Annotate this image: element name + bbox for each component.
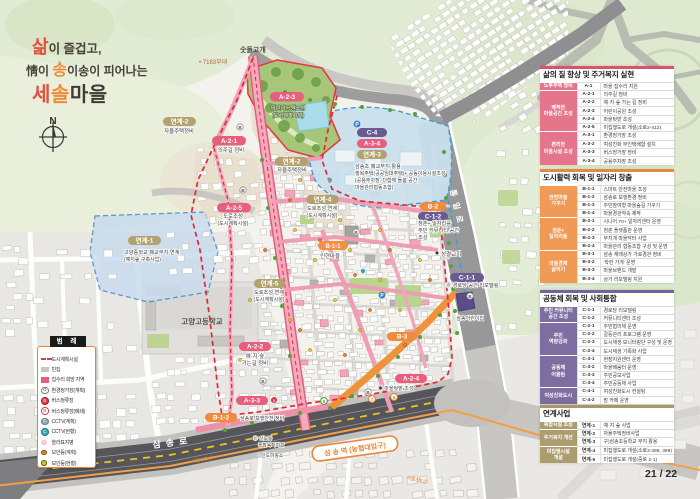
svg-text:B-3: B-3 xyxy=(397,333,408,340)
svg-text:연계-2: 연계-2 xyxy=(283,156,301,165)
svg-text:자율주택정비: 자율주택정비 xyxy=(277,166,307,174)
svg-text:B-2: B-2 xyxy=(428,203,439,210)
svg-text:B-1-1: B-1-1 xyxy=(325,244,341,250)
svg-text:자율주택정비: 자율주택정비 xyxy=(164,127,194,135)
svg-text:C-1-2: C-1-2 xyxy=(425,213,442,220)
svg-text:8: 8 xyxy=(393,395,396,401)
svg-text:B-1-2: B-1-2 xyxy=(213,414,230,421)
svg-text:연계-4: 연계-4 xyxy=(314,194,332,203)
svg-text:A-2-5: A-2-5 xyxy=(226,205,243,212)
svg-text:종합복지회관: 종합복지회관 xyxy=(258,442,285,449)
svg-text:숫돌고개: 숫돌고개 xyxy=(240,45,266,54)
svg-text:* 신도파출소: * 신도파출소 xyxy=(258,452,284,459)
svg-text:(예지숲 구축사업): (예지숲 구축사업) xyxy=(124,256,161,263)
svg-text:마을관리협동조합): 마을관리협동조합) xyxy=(355,184,394,191)
svg-text:5: 5 xyxy=(323,399,326,405)
svg-text:삼송초 폐교부지 활용: 삼송초 폐교부지 활용 xyxy=(355,162,401,170)
svg-text:○ 삼송어린이집: ○ 삼송어린이집 xyxy=(452,315,484,322)
svg-text:C-4: C-4 xyxy=(367,129,378,136)
svg-text:고양중학교 폐교부지 연계: 고양중학교 폐교부지 연계 xyxy=(124,248,180,256)
svg-text:A-2-4: A-2-4 xyxy=(403,375,420,382)
svg-text:A-2-3: A-2-3 xyxy=(279,94,296,101)
svg-text:• 7163부대: • 7163부대 xyxy=(199,58,227,66)
svg-text:조성: 조성 xyxy=(418,233,428,241)
svg-text:7: 7 xyxy=(371,397,374,403)
svg-text:B: B xyxy=(273,399,276,403)
svg-text:도로조성: 도로조성 xyxy=(223,212,243,220)
svg-text:인현마을: 인현마을 xyxy=(320,252,340,260)
svg-text:성결교회: 성결교회 xyxy=(441,250,461,258)
svg-text:◉ 마을텃밭 조성: ◉ 마을텃밭 조성 xyxy=(378,385,413,392)
svg-text:연계-3: 연계-3 xyxy=(363,149,381,158)
svg-text:C-1-1: C-1-1 xyxy=(459,274,476,281)
svg-text:행복주택(공공임대주택)+ 공동이용시설조성: 행복주택(공공임대주택)+ 공동이용시설조성 xyxy=(355,170,445,177)
svg-text:A-2-1: A-2-1 xyxy=(221,138,238,145)
svg-text:(도시계획시설): (도시계획시설) xyxy=(254,296,285,303)
svg-text:연계-5: 연계-5 xyxy=(261,278,279,287)
svg-text:어린이공원조성: 어린이공원조성 xyxy=(271,104,306,112)
svg-text:(공용주차장, 다함께 돌봄 공간,: (공용주차장, 다함께 돌봄 공간, xyxy=(355,177,419,184)
svg-text:도로조성 연계: 도로조성 연계 xyxy=(254,288,284,296)
svg-text:주민 커뮤니티 공간: 주민 커뮤니티 공간 xyxy=(418,226,459,234)
svg-text:의주길 정비: 의주길 정비 xyxy=(218,146,244,154)
svg-text:가는길 정비: 가는길 정비 xyxy=(242,359,268,367)
svg-text:(도시계획시설): (도시계획시설) xyxy=(307,212,338,219)
svg-text:A-3-4: A-3-4 xyxy=(364,140,381,147)
svg-text:도로조성 연계: 도로조성 연계 xyxy=(307,204,337,212)
svg-text:(도시계획시설): (도시계획시설) xyxy=(272,111,304,119)
svg-text:(도시계획시설): (도시계획시설) xyxy=(218,220,249,227)
svg-text:예·지·숲: 예·지·숲 xyxy=(246,352,265,360)
svg-text:Ⓑ 신도동: Ⓑ 신도동 xyxy=(253,435,273,442)
svg-text:고양고등학교: 고양고등학교 xyxy=(181,316,222,326)
svg-text:A-2-2: A-2-2 xyxy=(247,343,264,350)
svg-text:청춘+ 일자리를: 청춘+ 일자리를 xyxy=(418,219,451,227)
svg-text:연계-1: 연계-1 xyxy=(136,235,154,244)
svg-text:Ⓑ 경로당 공간 리모델링: Ⓑ 경로당 공간 리모델링 xyxy=(446,281,499,289)
svg-text:삼송로 보행안전 정비: 삼송로 보행안전 정비 xyxy=(240,415,284,422)
svg-text:A-3-3: A-3-3 xyxy=(244,397,261,404)
svg-text:연계-2: 연계-2 xyxy=(171,116,189,125)
